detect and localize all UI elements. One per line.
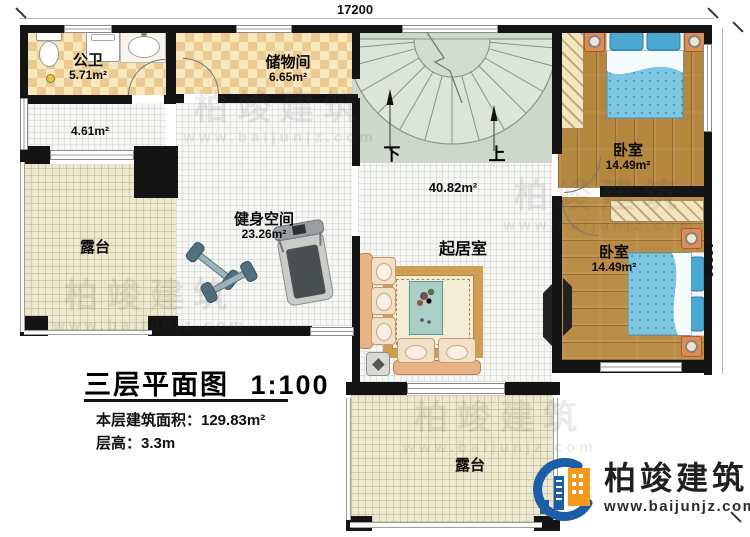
room-name: 公卫: [69, 52, 107, 69]
dimension-top-value: 17200: [305, 2, 405, 17]
nightstand-icon: [584, 31, 605, 52]
dumbbells-icon: [183, 238, 261, 310]
wall-segment: [176, 94, 184, 103]
wall-segment: [352, 25, 360, 79]
wall-segment: [552, 25, 712, 33]
wall-segment: [20, 25, 28, 98]
floor-height-line: 层高：3.3m: [96, 432, 175, 453]
wall-segment: [20, 95, 132, 104]
room-name: 健身空间: [234, 211, 294, 228]
room-label-bedroom-top: 卧室 14.49m²: [606, 142, 651, 173]
room-label-terrace-left: 露台: [80, 239, 110, 256]
sofa-seat-icon: [438, 338, 476, 363]
wall-segment: [552, 25, 562, 154]
wall-pillar: [134, 146, 178, 198]
dimension-line-top: [20, 18, 714, 19]
spiral-staircase: [352, 25, 552, 168]
window: [64, 25, 112, 33]
window: [20, 98, 28, 150]
window: [407, 383, 505, 394]
floor-drain-icon: [46, 74, 55, 83]
wall-segment: [505, 382, 560, 395]
stair-up-label: 上: [489, 140, 506, 165]
dimension-right-value: 12300: [701, 242, 716, 302]
plan-title-text: 三层平面图: [84, 370, 229, 400]
sofa-seat-icon: [371, 317, 396, 345]
nightstand-icon: [681, 336, 702, 357]
room-area: 5.71m²: [69, 69, 107, 83]
floor-area-line: 本层建筑面积：129.83m²: [96, 409, 265, 430]
company-name: 柏竣建筑: [604, 462, 750, 494]
room-label-terrace-bottom: 露台: [455, 457, 485, 474]
stair-down-label: 下: [384, 140, 401, 165]
nightstand-icon: [681, 228, 702, 249]
room-label-living: 起居室: [439, 241, 487, 259]
plan-scale: 1:100: [251, 370, 330, 400]
wall-segment: [498, 25, 560, 33]
window: [402, 25, 498, 33]
nightstand-icon: [684, 31, 705, 52]
room-name: 储物间: [265, 54, 310, 71]
terrace-railing: [346, 398, 351, 520]
living-area-value: 40.82m²: [429, 181, 477, 196]
sofa-seat-icon: [397, 338, 435, 363]
terrace-railing: [350, 522, 542, 528]
room-name: 卧室: [606, 142, 651, 159]
window: [50, 150, 134, 160]
window: [310, 327, 354, 336]
room-label-corridor: 4.61m²: [71, 125, 109, 139]
dimension-tick: [15, 7, 26, 18]
sofa-seat-icon: [371, 257, 396, 285]
sofa-seat-icon: [371, 287, 396, 315]
wall-segment: [218, 94, 358, 103]
bed-icon: [606, 29, 684, 119]
window: [236, 25, 292, 33]
toilet-icon: [36, 29, 62, 69]
company-logo-text: 柏竣建筑 www.baijunjz.com: [604, 462, 750, 515]
wall-segment: [552, 196, 562, 372]
tv-icon: [563, 278, 572, 336]
wall-segment: [352, 236, 360, 332]
plan-title: 三层平面图 1:100: [84, 363, 330, 402]
room-name: 卧室: [592, 244, 637, 261]
dimension-tick: [707, 7, 718, 18]
wall-segment: [158, 326, 312, 336]
tv-icon: [543, 284, 552, 346]
room-label-bedroom-bottom: 卧室 14.49m²: [592, 244, 637, 275]
wardrobe-icon: [559, 31, 584, 129]
wall-segment: [352, 98, 360, 166]
title-underline: [84, 399, 288, 402]
wall-segment: [346, 382, 407, 395]
room-label-bathroom: 公卫 5.71m²: [69, 52, 107, 83]
room-area: 14.49m²: [606, 159, 651, 173]
terrace-bottom-floor: [351, 395, 553, 522]
side-table-icon: [366, 352, 390, 376]
bed-icon: [628, 252, 706, 336]
dimension-tick: [732, 21, 743, 32]
wall-segment: [292, 25, 402, 33]
room-label-storage: 储物间 6.65m²: [265, 54, 310, 85]
company-logo-icon: [528, 456, 602, 524]
sink-icon: [120, 29, 166, 63]
terrace-railing: [24, 330, 152, 335]
room-label-gym: 健身空间 23.26m²: [234, 211, 294, 242]
company-website: www.baijunjz.com: [604, 498, 750, 515]
window: [600, 362, 682, 372]
room-area: 23.26m²: [234, 228, 294, 242]
dimension-line-right: [722, 28, 723, 374]
wall-segment: [600, 186, 712, 197]
wall-segment: [166, 25, 176, 103]
wardrobe-icon: [610, 200, 704, 222]
wall-pillar: [148, 316, 178, 336]
wall-segment: [164, 95, 176, 104]
coffee-table-icon: [409, 281, 443, 335]
room-area: 14.49m²: [592, 261, 637, 275]
terrace-railing: [20, 162, 25, 332]
room-area: 6.65m²: [265, 71, 310, 85]
window: [703, 44, 712, 132]
